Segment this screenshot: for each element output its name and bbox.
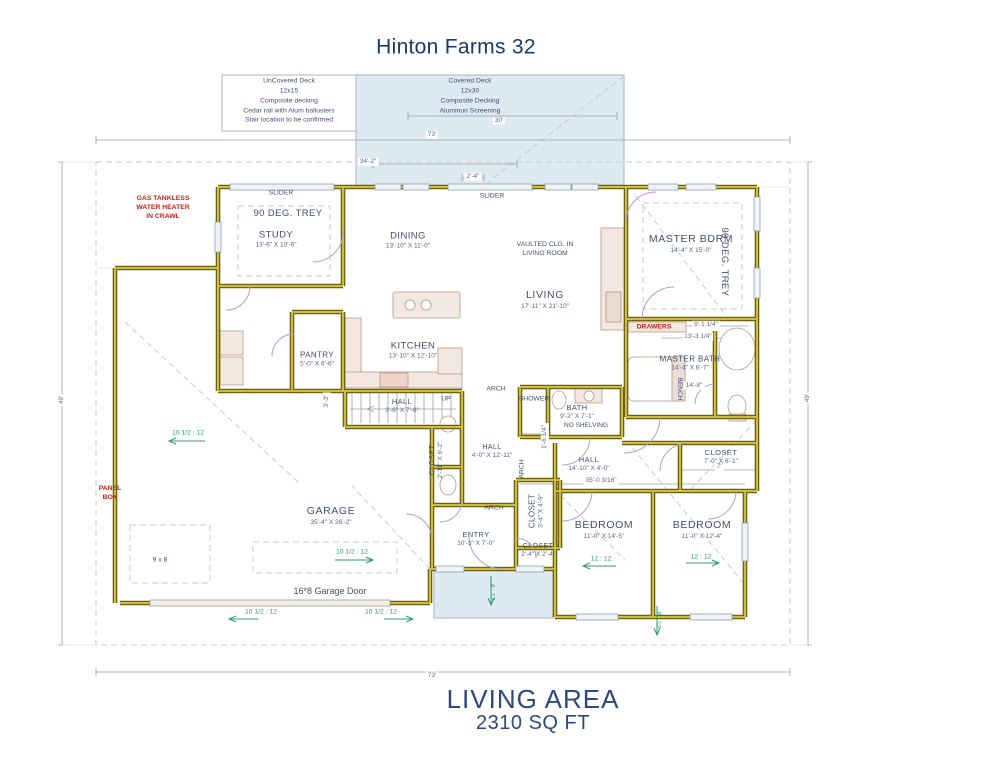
- room-label-kitchen: KITCHEN 13'-10" X 12'-10": [389, 341, 437, 362]
- trey-note-study: 90 DEG. TREY: [253, 208, 322, 220]
- room-label-bath: BATH 9'-2" X 7'-1": [560, 403, 594, 421]
- dim-offset: 2'-4": [465, 173, 482, 181]
- covered-deck-note: Covered Deck 12x30 Composite Decking Alu…: [440, 76, 501, 115]
- room-label-living: LIVING 17'-11" X 21'-10": [521, 289, 569, 311]
- room-label-entry: ENTRY 10'-3" X 7'-0": [457, 530, 494, 548]
- dim-covered-deck: 30': [493, 117, 505, 125]
- pitch-label-garage-left: 10 1/2 : 12: [172, 430, 204, 439]
- dim-master-a: 9'-1 1/4": [692, 321, 720, 329]
- dim-hall-run: 35'-0 3/16": [583, 477, 618, 485]
- floor-plan-page: Hinton Farms 32 UnCovered Deck 12x15 Com…: [0, 0, 995, 768]
- drawers-note: DRAWERS: [637, 322, 672, 331]
- dim-overall-top: 73': [426, 131, 438, 139]
- dim-master-bath-w: 14'-8": [684, 382, 705, 390]
- storage-label: 9 x 8: [153, 557, 168, 566]
- vaulted-ceiling-note: VAULTED CLG. IN LIVING ROOM: [517, 241, 574, 259]
- living-area-value: 2310 SQ FT: [476, 710, 590, 736]
- dim-stair-w: 3'-3": [323, 393, 331, 410]
- pitch-label-bedroom2: 12 : 12: [691, 554, 712, 563]
- room-label-closet-arch: CLOSET 3'-4" X 4'-9": [528, 494, 547, 528]
- room-label-hall-stairs: HALL 3'-6" X 7'-6": [385, 397, 419, 415]
- pitch-label-porch: 4 : 12: [487, 583, 496, 600]
- dim-depth-right: 49': [804, 392, 812, 404]
- dim-depth-left: 49': [58, 394, 66, 406]
- pitch-label-rear-right: 8 : 12: [653, 611, 662, 628]
- no-shelving-note: NO SHELVING: [564, 422, 608, 430]
- arch-label-top: ARCH: [486, 386, 505, 395]
- room-label-master-bath: MASTER BATH 14'-4" X 6'-7": [660, 355, 721, 374]
- dim-shower-w: 1'-6 1/4": [541, 423, 549, 451]
- room-label-bedroom1: BEDROOM 11'-0" X 14'-5": [575, 519, 633, 541]
- page-title: Hinton Farms 32: [376, 33, 536, 60]
- arch-label-mid: ARCH: [519, 459, 528, 478]
- arch-label-lower: ARCH: [484, 505, 503, 514]
- gas-water-heater-note: GAS TANKLESS WATER HEATER IN CRAWL: [136, 194, 189, 222]
- room-label-closet-right: CLOSET 7'-0" X 6'-1": [704, 448, 738, 466]
- uncovered-deck-note: UnCovered Deck 12x15 Composite decking C…: [243, 76, 334, 125]
- garage-door-label: 16*8 Garage Door: [293, 586, 366, 598]
- room-label-study: STUDY 13'-6" X 10'-6": [255, 230, 296, 251]
- pitch-label-garage-center: 10 1/2 : 12: [336, 549, 368, 558]
- dim-master-b: 13'-3 1/4": [682, 333, 713, 341]
- pitch-label-bedroom1: 12 : 12: [591, 556, 612, 565]
- room-label-dining: DINING 13'-10" X 11'-0": [386, 231, 430, 252]
- room-label-bedroom2: BEDROOM 11'-0" X 12'-4": [673, 519, 731, 541]
- room-label-master-bdrm: MASTER BDRM 14'-4" X 15'-0": [649, 233, 733, 255]
- dim-overall-bottom: 73': [426, 672, 438, 680]
- dim-house-left: 34'-2": [358, 158, 379, 166]
- pitch-label-front-right: 10 1/2 : 12: [365, 609, 397, 618]
- room-label-hall-entry: HALL 4'-0" X 12'-11": [472, 443, 513, 461]
- pitch-label-front-left: 10 1/2 : 12: [245, 609, 277, 618]
- room-label-garage: GARAGE 35'-4" X 26'-2": [307, 505, 356, 527]
- slider-label-right: SLIDER: [480, 193, 505, 202]
- bench-label: BENCH: [675, 378, 683, 401]
- room-label-hall-mid: HALL 14'-10" X 4'-0": [568, 455, 609, 473]
- room-label-closet-hall: CLOSET 2'-11" X 6'-2": [428, 442, 446, 479]
- room-label-closet-entry: CLOSET 2'-4" X 2'-4": [521, 542, 555, 560]
- room-label-pantry: PANTRY 5'-0" X 6'-6": [300, 351, 334, 370]
- slider-label-left: SLIDER: [269, 190, 294, 199]
- up-label: UP: [441, 396, 450, 405]
- panel-box-note: PANEL BOX: [99, 484, 122, 502]
- shower-label: SHOWER: [519, 396, 550, 405]
